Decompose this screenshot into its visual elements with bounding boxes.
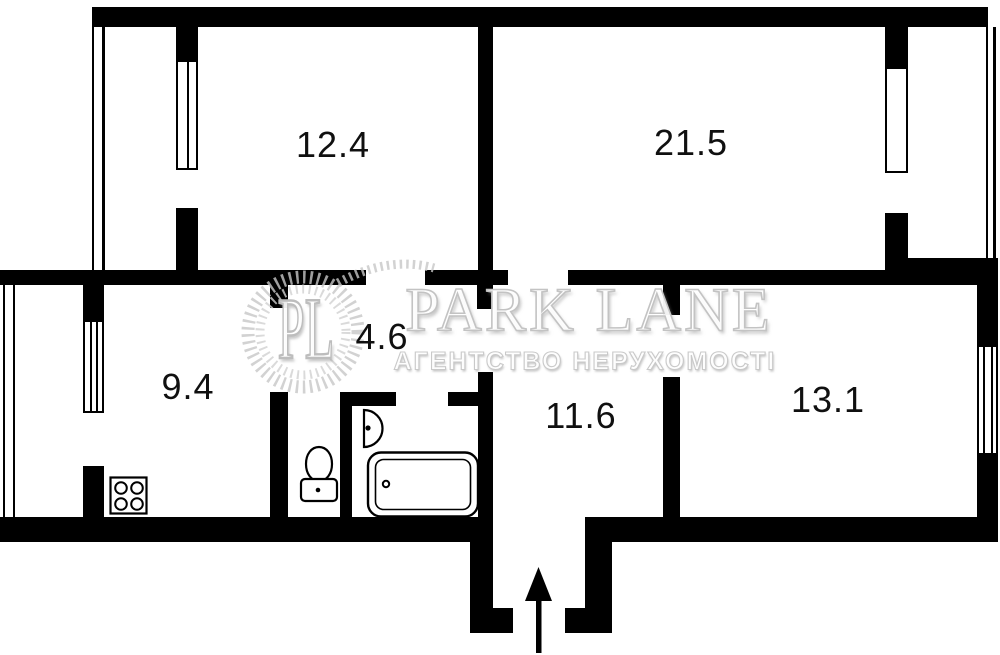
room-area-label: 12.4	[296, 124, 370, 166]
room-area-label: 4.6	[355, 316, 408, 358]
room-area-label: 13.1	[791, 379, 865, 421]
floor-plan: PL PARK LANE АГЕНТСТВО НЕРУХОМОСТІ 12.4 …	[0, 0, 1000, 655]
watermark-layer	[0, 0, 1000, 655]
room-area-label: 11.6	[545, 395, 616, 437]
room-area-label: 9.4	[161, 366, 214, 408]
room-area-label: 21.5	[654, 122, 728, 164]
